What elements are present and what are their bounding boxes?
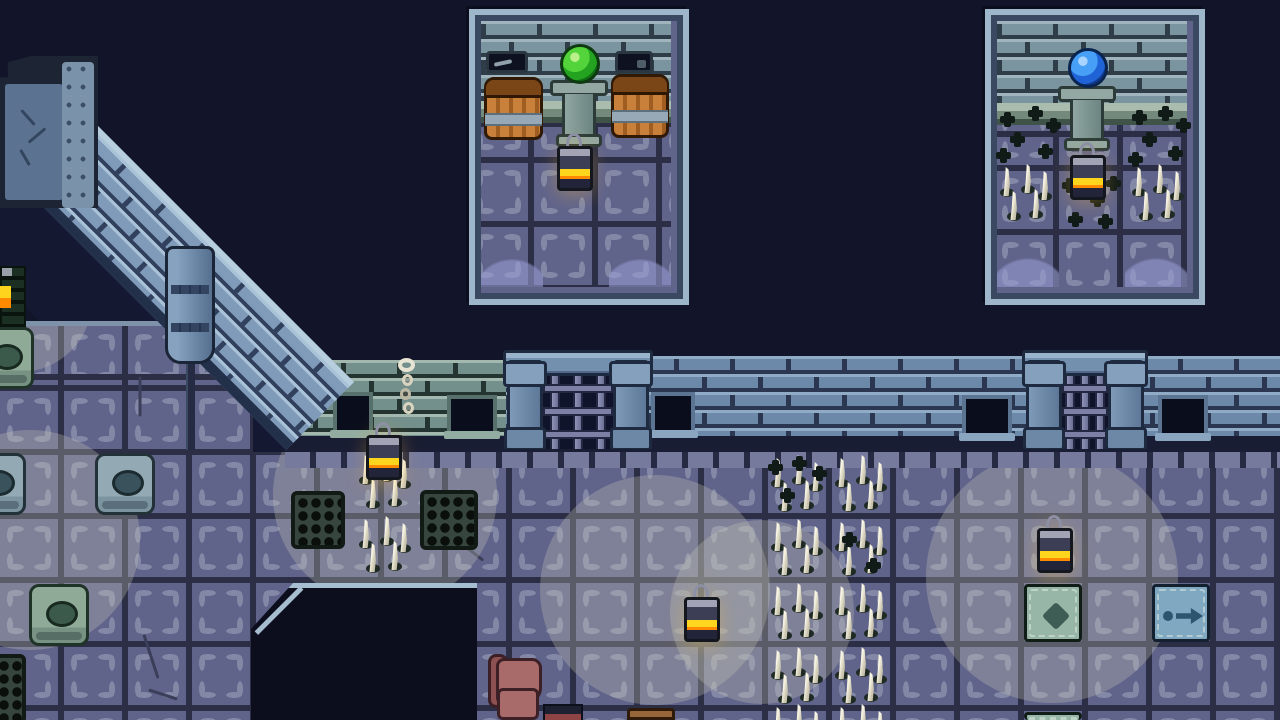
pressure-plate-diamond[interactable] — [1024, 584, 1082, 642]
spike-trap-tile — [828, 519, 892, 583]
floor-grate — [0, 654, 26, 720]
spike-hole — [1098, 214, 1113, 229]
spike — [365, 543, 381, 575]
spike — [863, 672, 879, 704]
hanging-lantern — [557, 133, 587, 185]
spike — [799, 480, 815, 512]
table-cutoff — [627, 708, 675, 720]
spike-trap-tile — [764, 519, 828, 583]
spike-trap-tile — [828, 455, 892, 519]
floor-grate — [420, 490, 478, 550]
edge-furnace-glow — [0, 286, 11, 308]
spike-hole — [1028, 106, 1043, 121]
stone-button[interactable] — [0, 453, 26, 515]
spike — [841, 610, 857, 642]
spike — [387, 477, 403, 509]
spike — [777, 674, 793, 706]
spike-trap-tile — [828, 583, 892, 647]
spike-hole — [1142, 132, 1157, 147]
spike-hole — [768, 460, 783, 475]
chair-cutoff — [497, 688, 539, 720]
spike-trap-tile — [764, 704, 828, 720]
spike-hole — [842, 532, 857, 547]
spike-trap-tile — [1125, 164, 1189, 228]
hanging-lantern — [684, 584, 714, 636]
stone-button[interactable] — [95, 453, 155, 515]
spike-hole — [866, 558, 881, 573]
spike-hole — [1128, 152, 1143, 167]
spike-hole — [1158, 106, 1173, 121]
spike — [770, 707, 786, 720]
spike-trap-tile — [993, 164, 1057, 228]
spike-trap-tile — [352, 516, 416, 580]
spike — [808, 711, 824, 720]
spike — [777, 546, 793, 578]
spike — [1160, 189, 1176, 221]
spike — [841, 482, 857, 514]
spike-hole — [1132, 110, 1147, 125]
spike — [777, 610, 793, 642]
stone-button[interactable] — [0, 327, 34, 389]
sprite-layer — [0, 0, 1280, 720]
spike-hole — [780, 488, 795, 503]
spike-hole — [1038, 144, 1053, 159]
spike — [863, 480, 879, 512]
hanging-lantern — [1070, 142, 1100, 194]
spike — [872, 711, 888, 720]
spike-hole — [812, 466, 827, 481]
diamond-icon — [1042, 602, 1070, 630]
pressure-plate-cutoff[interactable] — [1024, 712, 1082, 720]
spike-hole — [1000, 112, 1015, 127]
floor-grate — [291, 491, 345, 549]
game-viewport[interactable] — [0, 0, 1280, 720]
spike — [799, 672, 815, 704]
hanging-lantern — [1037, 515, 1067, 567]
spike — [1006, 191, 1022, 223]
spike-hole — [1068, 212, 1083, 227]
spike-hole — [1046, 118, 1061, 133]
spike — [841, 674, 857, 706]
spike — [799, 544, 815, 576]
spike — [387, 541, 403, 573]
spike — [863, 608, 879, 640]
spike — [834, 707, 850, 720]
arrow-right-icon — [1163, 608, 1203, 624]
spike-trap-tile — [764, 583, 828, 647]
pressure-plate-arrow[interactable] — [1152, 584, 1210, 642]
stone-button[interactable] — [29, 584, 89, 646]
edge-furnace-cap — [2, 268, 12, 276]
spike-trap-tile — [828, 704, 892, 720]
spike-hole — [1106, 176, 1121, 191]
red-rug-cutoff — [545, 714, 581, 720]
hanging-lantern — [366, 422, 396, 474]
spike-hole — [996, 148, 1011, 163]
spike-hole — [1010, 132, 1025, 147]
spike-trap-tile — [764, 647, 828, 711]
spike — [1028, 189, 1044, 221]
spike-hole — [792, 456, 807, 471]
spike-hole — [1176, 118, 1191, 133]
spike — [855, 704, 871, 720]
spike — [791, 704, 807, 720]
spike — [799, 608, 815, 640]
spike — [365, 479, 381, 511]
spike — [1138, 191, 1154, 223]
spike-hole — [1168, 146, 1183, 161]
spike — [841, 546, 857, 578]
spike-trap-tile — [828, 647, 892, 711]
